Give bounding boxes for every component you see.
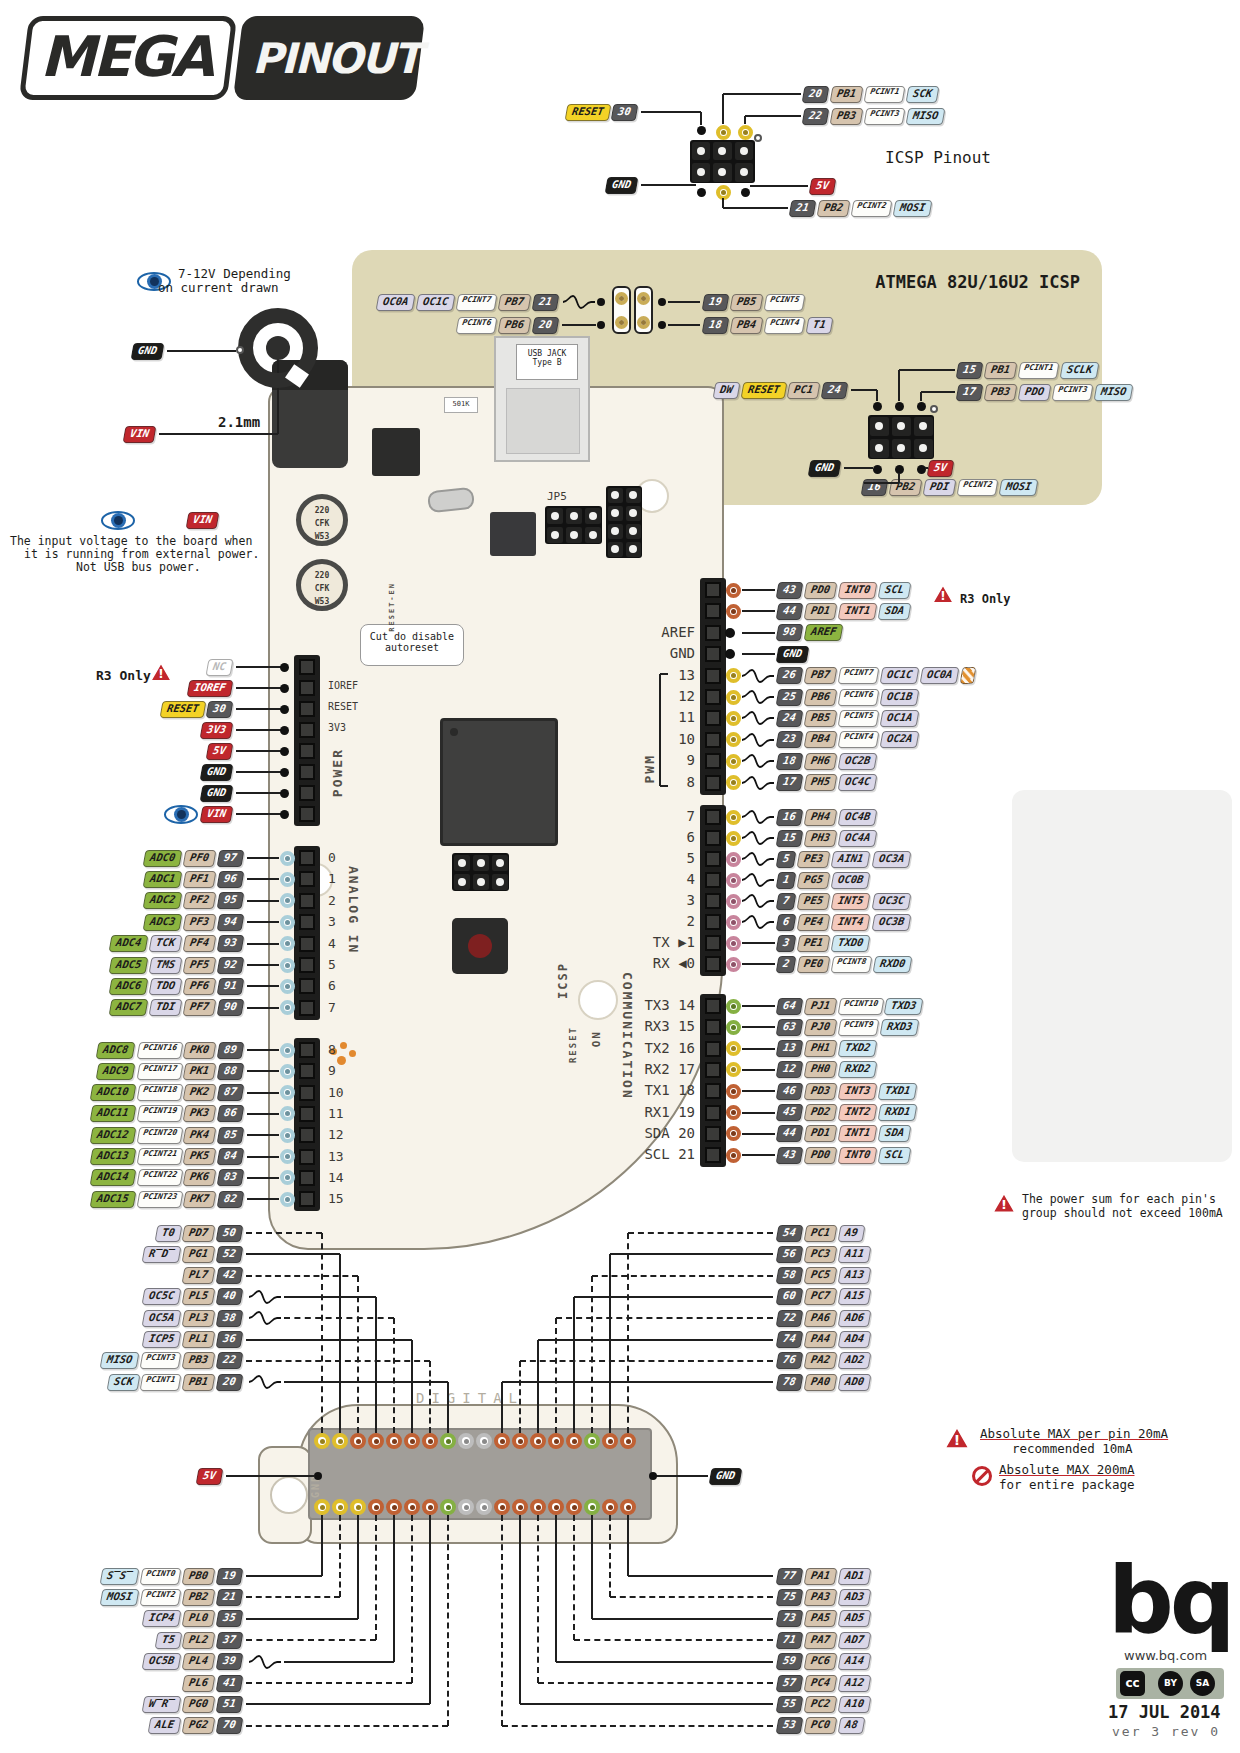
connector-line: [592, 1275, 773, 1277]
pin-row-right_c: 44PD1INT1SDA: [777, 1125, 910, 1143]
pin-chip-44: 44: [776, 1125, 804, 1142]
pin-chip-IOREF: IOREF: [187, 680, 234, 697]
pin-chip-ADC6: ADC6: [109, 978, 149, 995]
pin-chip-PCINT3: PCINT3: [1051, 384, 1093, 401]
connector-line: [668, 301, 700, 303]
pin-chip-5V: 5V: [196, 1468, 224, 1485]
pin-chip-PA0: PA0: [803, 1374, 837, 1391]
pin-chip-PCINT5: PCINT5: [763, 294, 805, 311]
capacitor-label: 220: [301, 569, 343, 582]
pin-row-dig_tr: 78PA0AD0: [777, 1373, 870, 1391]
pin-chip-AD5: AD5: [837, 1610, 871, 1627]
connector-line: [393, 1318, 395, 1433]
connector-line: [537, 1515, 539, 1683]
u2-row: 5V: [928, 459, 953, 477]
warning-icon: !: [992, 1192, 1016, 1218]
pin-chip-30: 30: [611, 104, 639, 121]
connector-pin: [713, 163, 732, 182]
board-silkscreen: DIGITAL: [416, 1390, 524, 1406]
board-silkscreen: 3: [328, 914, 336, 929]
pin-ring-orange: [620, 1499, 636, 1515]
pin-ring-yellow: [726, 732, 741, 747]
connector-line: [447, 1382, 449, 1433]
pin-chip-16: 16: [776, 809, 804, 826]
pin-row-analog_a: ADC5TMSPF592: [110, 956, 243, 974]
connector-line: [742, 632, 775, 634]
pin-chip-PD0: PD0: [803, 1147, 837, 1164]
header-pin: [299, 659, 315, 675]
abs-max-pkg-1: Absolute MAX 200mA: [999, 1462, 1134, 1477]
pin-chip-PG1: PG1: [182, 1246, 216, 1263]
pin-row-right_c: 46PD3INT3TXD1: [777, 1082, 916, 1100]
connector-line: [742, 1026, 775, 1028]
pin-chip-98: 98: [776, 624, 804, 641]
board-silkscreen-vertical: RESET-EN: [388, 582, 396, 632]
pin-ring-orange: [422, 1433, 438, 1449]
pwm-squiggle-icon: [741, 914, 775, 930]
board-silkscreen: RX2 17: [600, 1061, 695, 1077]
header-pin: [705, 1062, 721, 1078]
pin-chip-46: 46: [776, 1083, 804, 1100]
pin-chip-WR: W̅R̅: [142, 1696, 182, 1713]
pin-chip-A8: A8: [837, 1717, 865, 1734]
connector-line: [520, 1703, 773, 1705]
pin-ring-blue: [280, 851, 295, 866]
pin-chip-5: 5: [776, 851, 797, 868]
pin-chip-INT5: INT5: [831, 893, 871, 910]
voltage-regulator: [372, 428, 420, 476]
usb-type-label: Type B: [517, 358, 577, 367]
pin-chip-A11: A11: [837, 1246, 871, 1263]
pin-chip-OC0A: OC0A: [919, 667, 959, 684]
pin-chip-PH4: PH4: [803, 809, 837, 826]
junction-dot: [280, 684, 289, 693]
pin-chip-A13: A13: [837, 1267, 871, 1284]
board-silkscreen: 5: [328, 957, 336, 972]
capacitor: 220CFKW53: [296, 494, 348, 546]
vin-note-1: The input voltage to the board when: [10, 534, 252, 548]
pin-chip-INT1: INT1: [837, 1125, 877, 1142]
junction-dot: [895, 402, 904, 411]
pin-ring-green: [584, 1433, 600, 1449]
pin-ring-orange: [530, 1433, 546, 1449]
pwm-squiggle-icon: [741, 809, 775, 825]
reset-button-cap: [468, 934, 492, 958]
icsp-top-row: RESET30: [566, 103, 637, 121]
pin-chip-24: 24: [776, 710, 804, 727]
pin-chip-T5: T5: [154, 1632, 182, 1649]
pin-chip-84: 84: [217, 1148, 245, 1165]
junction-dot: [873, 465, 882, 474]
connector-line: [851, 389, 877, 391]
junction-dot: [725, 649, 735, 659]
pin-chip-PCINT1: PCINT1: [1017, 362, 1059, 379]
pin-chip-SCL: SCL: [877, 582, 911, 599]
junction-dot: [917, 402, 926, 411]
pin-chip-ADC8: ADC8: [96, 1042, 136, 1059]
junction-dot: [280, 810, 289, 819]
connector-pin: [608, 524, 623, 539]
logo-pinout-text: PINOUT: [252, 34, 420, 83]
pin-chip-20: 20: [216, 1374, 244, 1391]
pin-chip-PCINT0: PCINT0: [140, 1568, 182, 1585]
connector-line: [555, 1515, 557, 1662]
connector-line: [742, 1069, 775, 1071]
port-power-hash-icon: [960, 667, 977, 684]
header-pin: [705, 956, 721, 972]
header-pin: [705, 1041, 721, 1057]
icsp-annotation-header: [690, 140, 755, 183]
board-silkscreen: RX ◀0: [600, 955, 695, 971]
connector-line: [591, 1515, 593, 1619]
pin-chip-PE3: PE3: [797, 851, 831, 868]
junction-dot: [597, 298, 605, 306]
pin-ring-orange: [726, 1084, 741, 1099]
connector-line: [246, 1575, 322, 1577]
pin-ring-orange: [386, 1433, 402, 1449]
pin-chip-RXD1: RXD1: [877, 1104, 917, 1121]
pin-row-dig_bl: ICP4PL035: [143, 1610, 242, 1628]
board-silkscreen: 8: [328, 1042, 336, 1057]
connector-line: [628, 1575, 773, 1577]
connector-line: [502, 1725, 773, 1727]
pin-chip-PK2: PK2: [183, 1084, 217, 1101]
header-pin: [705, 935, 721, 951]
pin-chip-PC5: PC5: [803, 1267, 837, 1284]
pin-chip-PK4: PK4: [183, 1127, 217, 1144]
pin-chip-PA6: PA6: [803, 1310, 837, 1327]
pin-chip-97: 97: [217, 850, 245, 867]
pin-row-power_left: VIN: [164, 805, 232, 823]
pin-ring-orange: [368, 1433, 384, 1449]
index-hole: [930, 405, 938, 413]
pin-row-power_left: 3V3: [201, 721, 232, 739]
pin-chip-OC1C: OC1C: [879, 667, 919, 684]
u2-row: 19PB5PCINT5: [703, 293, 804, 311]
junction-dot: [917, 465, 926, 474]
connector-pin: [608, 506, 623, 521]
connector-pin: [585, 527, 601, 543]
pin-row-dig_tl: R̅D̅PG152: [143, 1245, 242, 1263]
pin-chip-VIN: VIN: [200, 806, 234, 823]
pin-chip-PC2: PC2: [803, 1696, 837, 1713]
board-silkscreen-vertical: POWER: [330, 748, 345, 797]
pin-chip-PCINT4: PCINT4: [837, 731, 879, 748]
jack-voltage-note-1: 7-12V Depending: [178, 266, 291, 281]
pin-ring-pink: [726, 936, 741, 951]
pin-chip-PCINT2: PCINT2: [956, 479, 998, 496]
pin-row-dig_tr: 72PA6AD6: [777, 1309, 870, 1327]
pin-chip-PJ1: PJ1: [803, 998, 837, 1015]
pin-chip-INT0: INT0: [837, 1147, 877, 1164]
u2-icsp-title: ATMEGA 82U/16U2 ICSP: [780, 272, 1080, 292]
pin-row-dig_tl: T0PD750: [156, 1224, 242, 1242]
pin-row-dig_bl: MOSIPCINT2PB221: [101, 1588, 242, 1606]
pin-ring-blue: [280, 1043, 295, 1058]
pin-chip-OC2B: OC2B: [837, 753, 877, 770]
header-pin: [299, 1127, 315, 1143]
pin-chip-63: 63: [776, 1019, 804, 1036]
pin-chip-PE0: PE0: [797, 956, 831, 973]
pin-chip-30: 30: [206, 701, 234, 718]
connector-line: [591, 1276, 593, 1433]
board-silkscreen-vertical: ANALOG IN: [346, 866, 361, 954]
pin-chip-GND: GND: [776, 646, 810, 663]
pin-ring-pink: [726, 852, 741, 867]
connector-line: [284, 1661, 394, 1663]
connector-line: [655, 1475, 708, 1477]
pin-row-analog_a: ADC3PF394: [144, 913, 243, 931]
pin-ring-orange: [386, 1499, 402, 1515]
icsp-top-row: 21PB2PCINT2MOSI: [790, 199, 931, 217]
pin-row-right_a: 18PH6OC2B: [777, 752, 876, 770]
pin-chip-89: 89: [217, 1042, 245, 1059]
connector-pin: [608, 488, 623, 503]
pin-chip-PCINT1: PCINT1: [140, 1374, 182, 1391]
pin-chip-PD0: PD0: [803, 582, 837, 599]
connector-line: [742, 653, 775, 655]
header-pin: [705, 914, 721, 930]
pin-ring-orange: [602, 1433, 618, 1449]
pin-ring-blue: [280, 1170, 295, 1185]
header-pin: [299, 1042, 315, 1058]
pin-row-right_b: 16PH4OC4B: [777, 808, 876, 826]
pin-row-dig_tr: 58PC5A13: [777, 1267, 870, 1285]
pin-chip-MOSI: MOSI: [100, 1589, 140, 1606]
pin-chip-55: 55: [776, 1696, 804, 1713]
connector-line: [246, 1639, 376, 1641]
u2-row: 17PB3PDOPCINT3MISO: [957, 383, 1132, 401]
connector-pin: [473, 855, 489, 871]
pin-chip-1: 1: [776, 872, 797, 889]
pin-ring-blue: [280, 1149, 295, 1164]
svg-text:!: !: [1001, 1197, 1007, 1212]
connector-pin: [585, 508, 601, 524]
connector-line: [555, 1318, 557, 1433]
connector-line: [723, 207, 788, 209]
board-silkscreen: 3: [600, 892, 695, 908]
connector-line: [247, 1198, 279, 1200]
pin-chip-PB7: PB7: [803, 667, 837, 684]
connector-line: [246, 1275, 358, 1277]
pwm-header-a: [700, 578, 726, 795]
comm-header: [700, 994, 726, 1167]
board-silkscreen: 3V3: [328, 722, 346, 733]
pin-row-right_c: 13PH1TXD2: [777, 1040, 876, 1058]
pin-row-dig_bl: W̅R̅PG051: [143, 1695, 242, 1713]
bq-date: 17 JUL 2014: [1108, 1702, 1221, 1722]
pwm-squiggle-icon: [741, 872, 775, 888]
paw-decoration: [337, 1056, 346, 1065]
pin-row-dig_br: 57PC4A12: [777, 1674, 870, 1692]
pin-chip-RXD0: RXD0: [873, 956, 913, 973]
pin-row-dig_br: 75PA3AD3: [777, 1588, 870, 1606]
jp5-header: [545, 506, 602, 544]
pin-ring-orange: [566, 1433, 582, 1449]
cc-icon: cc: [1120, 1671, 1145, 1696]
cc-sa-icon: SA: [1190, 1671, 1215, 1696]
pin-chip-88: 88: [217, 1063, 245, 1080]
header-pin: [705, 753, 721, 769]
pin-chip-PDO: PDO: [1017, 384, 1051, 401]
pin-chip-T0: T0: [154, 1225, 182, 1242]
connector-pin: [492, 874, 508, 890]
header-pin: [705, 1147, 721, 1163]
pin-chip-AD0: AD0: [837, 1374, 871, 1391]
pin-ring-pink: [726, 957, 741, 972]
board-silkscreen: IOREF: [328, 680, 358, 691]
pin-ring-blue: [280, 915, 295, 930]
junction-dot: [280, 789, 289, 798]
connector-line: [742, 942, 775, 944]
pin-ring-green: [440, 1499, 456, 1515]
connector-line: [921, 391, 955, 393]
connector-line: [610, 1596, 773, 1598]
pin-chip-PL3: PL3: [182, 1310, 216, 1327]
u2-row: DWRESETPC124: [714, 381, 847, 399]
pin-ring-blue: [280, 958, 295, 973]
junction-dot: [658, 298, 666, 306]
junction-dot: [725, 628, 735, 638]
abs-max-pin-2: recommended 10mA: [1012, 1441, 1132, 1456]
connector-line: [246, 1232, 322, 1234]
pin-chip-PCINT8: PCINT8: [831, 956, 873, 973]
pin-row-power_left: GND: [201, 763, 232, 781]
pin-chip-87: 87: [217, 1084, 245, 1101]
pin-ring-yellow: [314, 1433, 330, 1449]
junction-dot: [649, 1472, 657, 1480]
pin-ring-orange: [368, 1499, 384, 1515]
board-silkscreen: 9: [328, 1063, 336, 1078]
header-pin: [299, 806, 315, 822]
pin-chip-PC3: PC3: [803, 1246, 837, 1263]
mcu-pin1-dot: [450, 728, 458, 736]
pin-chip-PB7: PB7: [498, 294, 532, 311]
pin-chip-PA1: PA1: [803, 1568, 837, 1585]
pin-chip-ALE: ALE: [148, 1717, 182, 1734]
board-silkscreen: SDA 20: [600, 1125, 695, 1141]
pin-chip-ICP4: ICP4: [142, 1610, 182, 1627]
connector-line: [723, 93, 801, 95]
junction-dot: [873, 402, 882, 411]
pin-row-right_b: 6PE4INT4OC3B: [777, 913, 910, 931]
svg-text:!: !: [940, 589, 945, 603]
pin-row-analog_b: ADC8PCINT16PK089: [97, 1041, 243, 1059]
pin-chip-PC0: PC0: [803, 1717, 837, 1734]
jack-size-label: 2.1mm: [218, 414, 260, 430]
pin-row-analog_a: ADC4TCKPF493: [110, 935, 243, 953]
pin-row-right_c: 12PH0RXD2: [777, 1061, 876, 1079]
pin-ring-yellow: [726, 754, 741, 769]
pin-chip-57: 57: [776, 1675, 804, 1692]
connector-line: [429, 1515, 431, 1704]
connector-line: [899, 369, 955, 371]
capacitor-label: CFK: [301, 582, 343, 595]
pin-row-dig_tl: OC5APL338: [143, 1309, 242, 1327]
connector-pin: [454, 855, 470, 871]
pin-row-dig_br: 59PC6A14: [777, 1653, 870, 1671]
connector-line: [246, 1360, 430, 1362]
connector-line: [247, 1177, 279, 1179]
connector-pin: [547, 508, 563, 524]
connector-line: [864, 482, 899, 484]
pin-chip-PH3: PH3: [803, 830, 837, 847]
connector-line: [247, 1156, 279, 1158]
pin-chip-PCINT22: PCINT22: [136, 1169, 183, 1186]
pin-chip-36: 36: [216, 1331, 244, 1348]
pin-chip-OC1C: OC1C: [416, 294, 456, 311]
pin-ring-orange: [602, 1499, 618, 1515]
pin-chip-42: 42: [216, 1267, 244, 1284]
pin-chip-PK6: PK6: [183, 1169, 217, 1186]
pin-chip-PCINT20: PCINT20: [136, 1127, 183, 1144]
pin-ring-yellow: [726, 810, 741, 825]
connector-line: [236, 729, 282, 731]
connector-line: [247, 943, 279, 945]
connector-gnd-row: GND: [710, 1467, 741, 1485]
pin-ring-blue: [280, 872, 295, 887]
pin-chip-ADC3: ADC3: [143, 914, 183, 931]
connector-pin: [473, 874, 489, 890]
connector-line: [236, 792, 282, 794]
pin-chip-6: 6: [776, 914, 797, 931]
pin-chip-PB4: PB4: [803, 731, 837, 748]
pin-chip-23: 23: [776, 731, 804, 748]
pin-row-right_c: 45PD2INT2RXD1: [777, 1104, 916, 1122]
pin-chip-PB3: PB3: [829, 108, 863, 125]
pin-chip-22: 22: [802, 108, 830, 125]
board-silkscreen: JP5: [547, 490, 567, 503]
pin-chip-40: 40: [216, 1288, 244, 1305]
connector-line: [501, 1515, 503, 1726]
pin-chip-ADC10: ADC10: [90, 1084, 137, 1101]
pin-chip-ADC1: ADC1: [143, 871, 183, 888]
pin-chip-INT0: INT0: [837, 582, 877, 599]
header-pin: [299, 701, 315, 717]
pin-row-analog_b: ADC10PCINT18PK287: [91, 1084, 243, 1102]
junction-dot: [314, 1472, 322, 1480]
logo-mega-text: MEGA: [40, 24, 211, 89]
pin-chip-94: 94: [217, 914, 245, 931]
pin-ring-green: [726, 999, 741, 1014]
pin-row-right_a: 26PB7PCINT7OC1COC0A: [777, 667, 975, 685]
connector-line: [357, 1276, 359, 1433]
junction-dot: [280, 768, 289, 777]
pin-chip-OC3C: OC3C: [871, 893, 911, 910]
connector-line: [520, 1360, 773, 1362]
pin-chip-PK0: PK0: [183, 1042, 217, 1059]
board-silkscreen: GND: [600, 645, 695, 661]
svg-text:!: !: [158, 667, 163, 681]
pin-chip-PB1: PB1: [983, 362, 1017, 379]
pin-chip-SCK: SCK: [106, 1374, 140, 1391]
barrel-jack-pin: [266, 336, 290, 360]
pin-chip-PA4: PA4: [803, 1331, 837, 1348]
pin-chip-PCINT17: PCINT17: [136, 1063, 183, 1080]
pin-row-right_c: 63PJ0PCINT9RXD3: [777, 1018, 918, 1036]
connector-line: [236, 813, 282, 815]
pin-row-dig_tl: OC5CPL540: [143, 1288, 242, 1306]
pin-chip-OC0A: OC0A: [375, 294, 415, 311]
connector-line: [246, 1703, 430, 1705]
pin-row-analog_b: ADC11PCINT19PK386: [91, 1105, 243, 1123]
pin-chip-83: 83: [217, 1169, 245, 1186]
capacitor-label: W53: [301, 530, 343, 543]
index-hole: [754, 134, 762, 142]
pin-chip-OC1B: OC1B: [879, 689, 919, 706]
pin-chip-SS: S̅S̅: [100, 1568, 140, 1585]
header-pin: [299, 871, 315, 887]
